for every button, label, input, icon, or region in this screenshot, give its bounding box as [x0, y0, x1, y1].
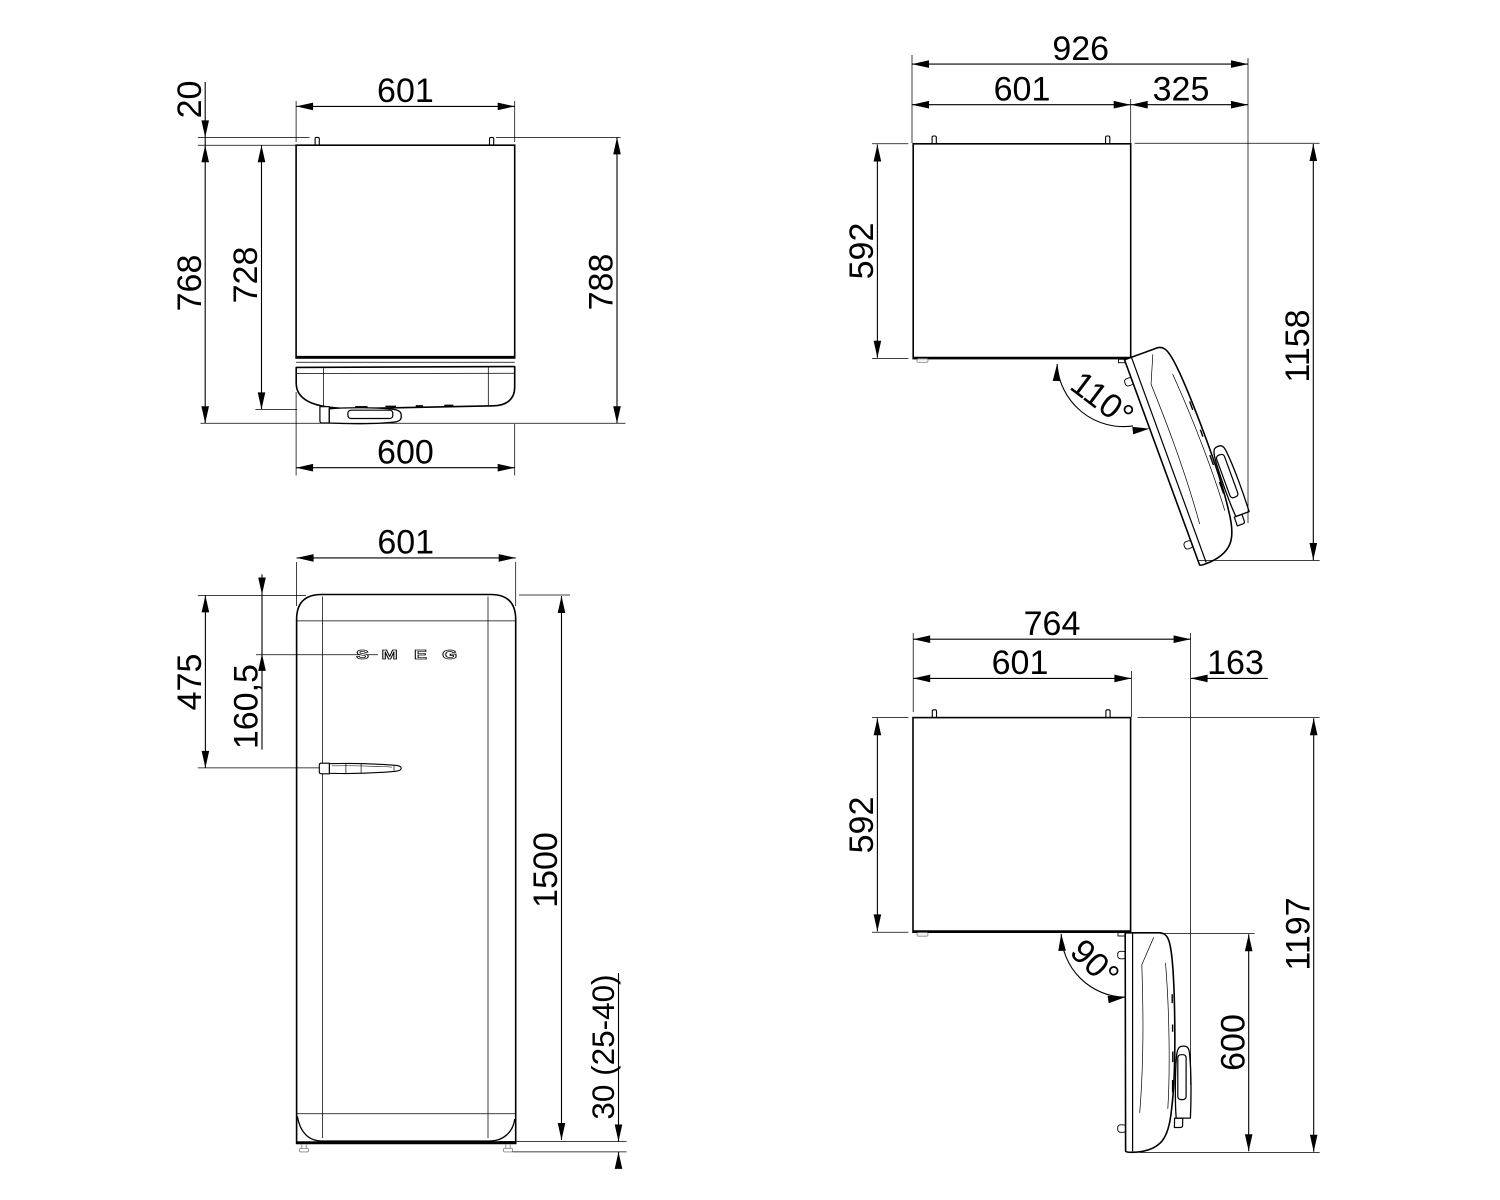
- svg-text:S: S: [356, 648, 369, 662]
- svg-text:30 (25-40): 30 (25-40): [585, 974, 621, 1119]
- svg-text:475: 475: [171, 654, 209, 711]
- svg-text:600: 600: [1214, 1014, 1252, 1071]
- svg-text:601: 601: [377, 524, 434, 562]
- svg-text:163: 163: [1207, 644, 1264, 682]
- svg-text:20: 20: [171, 81, 209, 119]
- svg-text:600: 600: [377, 434, 434, 472]
- svg-text:1158: 1158: [1279, 309, 1317, 382]
- svg-text:764: 764: [1024, 605, 1081, 643]
- svg-text:926: 926: [1052, 30, 1109, 68]
- svg-text:601: 601: [992, 644, 1049, 682]
- svg-text:1197: 1197: [1279, 897, 1317, 970]
- svg-text:M: M: [382, 648, 398, 662]
- svg-text:160,5: 160,5: [228, 664, 266, 749]
- svg-text:601: 601: [377, 72, 434, 110]
- svg-text:592: 592: [843, 223, 881, 280]
- svg-text:1500: 1500: [527, 832, 565, 908]
- svg-text:325: 325: [1153, 71, 1210, 109]
- svg-text:601: 601: [994, 71, 1051, 109]
- svg-text:E: E: [414, 648, 427, 662]
- svg-text:728: 728: [227, 247, 265, 304]
- svg-text:788: 788: [583, 254, 621, 311]
- svg-text:592: 592: [843, 797, 881, 854]
- svg-text:G: G: [442, 648, 457, 662]
- svg-text:768: 768: [171, 255, 209, 312]
